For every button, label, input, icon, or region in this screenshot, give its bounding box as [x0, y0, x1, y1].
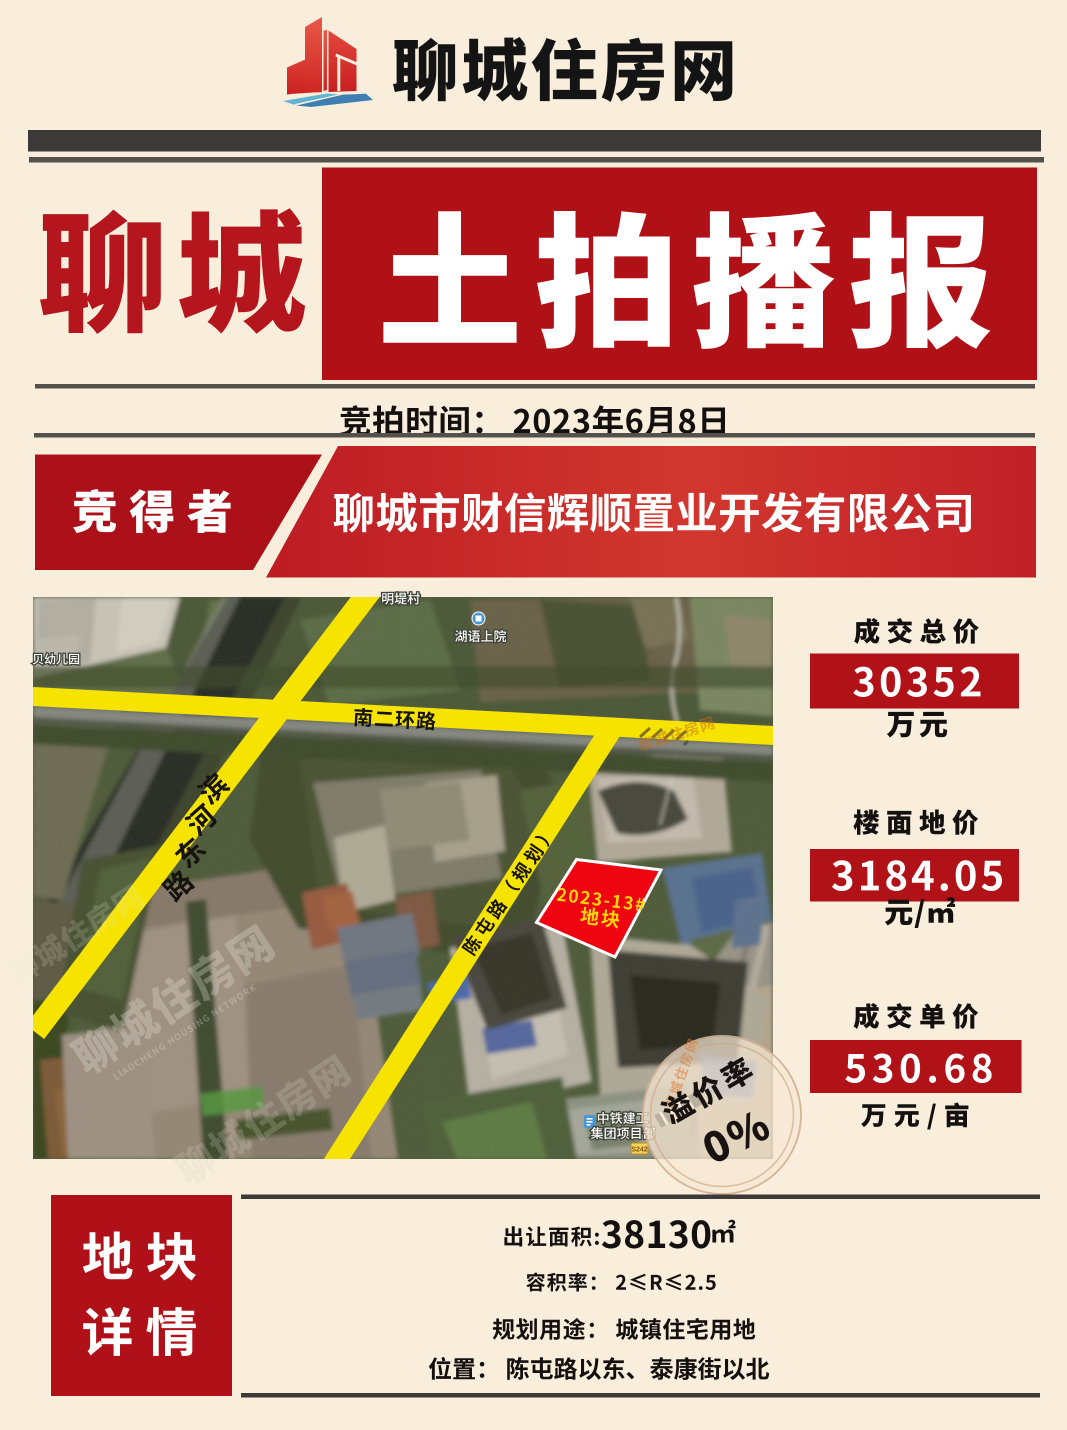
svg-text:S242: S242: [631, 1147, 647, 1154]
